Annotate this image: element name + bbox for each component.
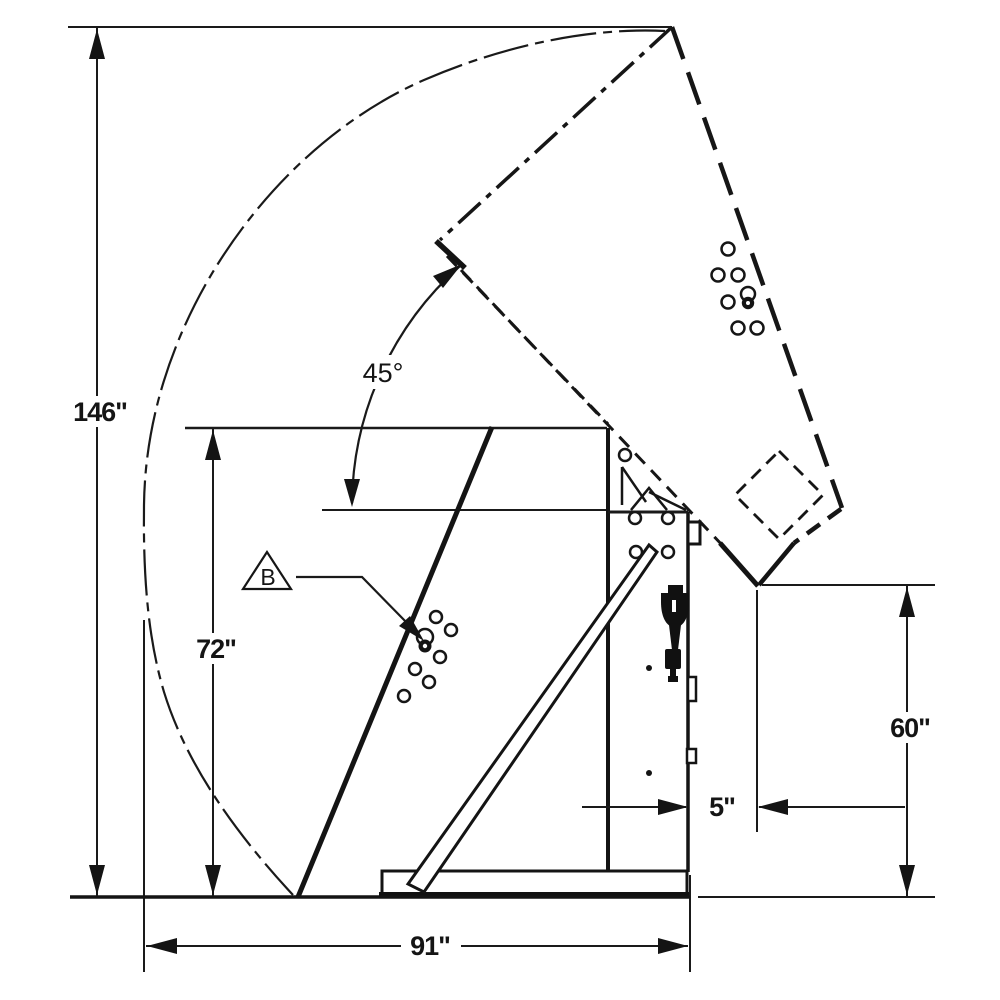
swing-path-arc: [144, 30, 665, 895]
tilt-angle-label: 45°: [363, 358, 404, 388]
fork-pocket-dashed-square: [735, 451, 823, 539]
mast-top-gusset: [619, 449, 686, 510]
dim-60-label: 60": [890, 713, 930, 743]
mast-latch-tab: [688, 522, 700, 544]
tilt-angle-arrow-bottom: [344, 479, 360, 507]
gusset-hole: [619, 449, 631, 461]
tilted-bolt-pattern: [712, 243, 764, 335]
dim-overall-height: 146": [70, 28, 130, 896]
dim-base-width: 91": [146, 930, 688, 961]
upright-machine: [298, 427, 700, 897]
tilted-bottom-edge-dashed: [794, 509, 841, 543]
mast-bracket-upper: [688, 677, 696, 701]
tilted-lip-edge: [436, 241, 465, 268]
tilt-angle-dimension: 45°: [344, 264, 462, 507]
tilt-angle-arrow-top: [433, 264, 462, 288]
callout-b: B: [243, 552, 424, 641]
mast-bracket-lower: [687, 749, 696, 763]
extension-lines: [68, 27, 935, 972]
dim-5-label: 5": [709, 792, 735, 822]
tilted-right-edge: [672, 27, 842, 508]
tilted-chute-lower-solid: [720, 543, 758, 586]
tilted-left-edge: [440, 27, 672, 240]
callout-b-label: B: [260, 564, 275, 590]
dim-clearance: 5": [582, 792, 905, 822]
dim-91-label: 91": [410, 931, 450, 961]
diagonal-brace: [408, 545, 657, 892]
hydraulic-cylinder-unit: [661, 585, 689, 682]
dumper-side-view-drawing: 45°: [0, 0, 1000, 1000]
technical-drawing: 45°: [0, 0, 1000, 1000]
tilted-bottom-edge-solid: [759, 543, 794, 585]
dim-dump-height: 60": [881, 586, 939, 896]
tilted-chute-lower-line: [461, 270, 724, 547]
dim-72-label: 72": [196, 634, 236, 664]
callout-b-leader: [296, 577, 410, 626]
dim-146-label: 146": [73, 397, 127, 427]
